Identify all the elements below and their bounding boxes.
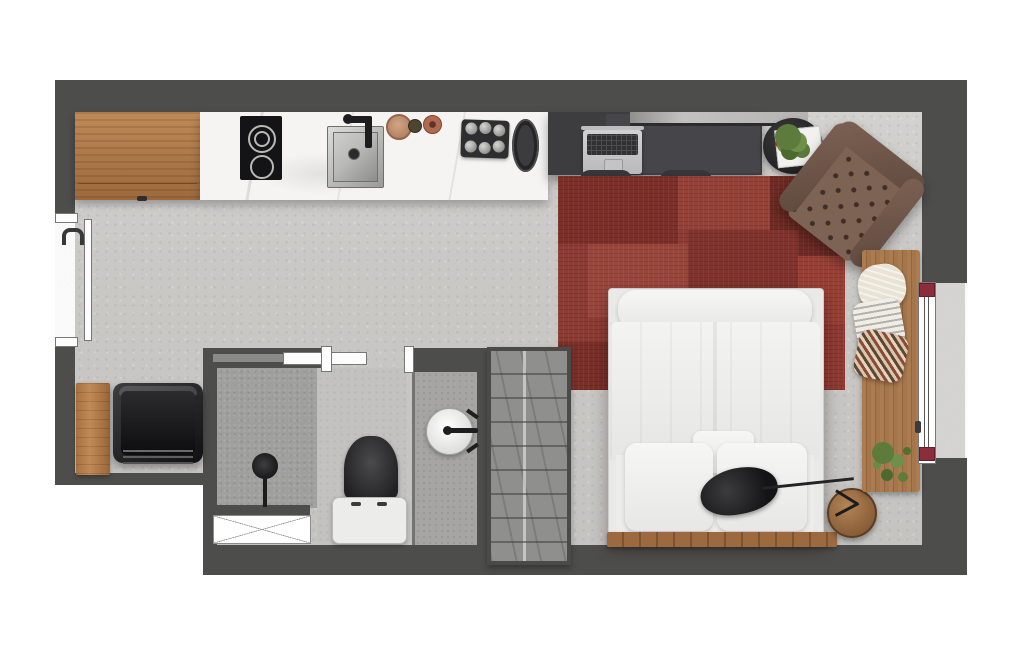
kitchen-faucet-stem xyxy=(365,116,372,148)
laptop-keyboard xyxy=(587,134,638,155)
shower-mixer-stem xyxy=(263,477,267,507)
cabinet-divider xyxy=(78,183,197,184)
entry-door-leaf xyxy=(84,219,92,341)
rug-patch xyxy=(678,176,770,230)
basin-faucet-bar xyxy=(449,428,478,433)
shower-tray-marker xyxy=(213,515,311,544)
glass xyxy=(465,122,477,134)
bed-slat-strip xyxy=(607,532,837,547)
toilet-hinge xyxy=(351,502,361,506)
glass-tray xyxy=(460,119,509,159)
plant-icon xyxy=(775,124,801,150)
entry-door-frame-top xyxy=(55,213,78,223)
shower-curb xyxy=(211,505,310,515)
sink-drain xyxy=(348,148,360,160)
toilet-hinge xyxy=(377,502,387,506)
lounge-footrest-line xyxy=(123,456,193,458)
vanity-counter xyxy=(412,372,480,545)
cooktop xyxy=(240,116,282,180)
door-handle-icon xyxy=(62,228,84,245)
lounge-seat xyxy=(121,391,195,455)
toilet-seat xyxy=(344,436,398,500)
oval-platter xyxy=(512,119,539,172)
glass xyxy=(478,142,490,154)
kitchen-faucet-end xyxy=(343,114,353,124)
top-wall xyxy=(55,80,967,112)
glass xyxy=(465,140,477,152)
bench-plant-icon xyxy=(872,442,894,464)
lounge-footrest-line xyxy=(123,450,193,452)
glass xyxy=(493,124,505,136)
floor-plan xyxy=(0,0,1024,645)
rug-patch xyxy=(558,244,588,342)
kitchen-sink xyxy=(327,126,384,188)
bottom-wall xyxy=(200,545,967,575)
sliding-door-track xyxy=(213,354,283,362)
window-cap-bottom xyxy=(919,447,935,461)
side-board xyxy=(76,383,110,475)
shower-mixer-icon xyxy=(252,453,278,479)
serving-board-small xyxy=(408,119,422,133)
burner-ring-inner xyxy=(254,131,270,147)
bathroom-door-jamb xyxy=(404,346,414,373)
cabinet-handle xyxy=(137,196,147,201)
burner-ring xyxy=(250,155,274,179)
kitchen-cabinet xyxy=(75,112,200,200)
shower-floor xyxy=(217,368,317,508)
pillow-left xyxy=(625,443,713,531)
bench-pillow-chevron xyxy=(852,327,911,384)
window-glass-line xyxy=(924,296,925,448)
glass xyxy=(479,122,491,134)
platter-inner xyxy=(517,125,534,166)
serving-board-medium xyxy=(423,115,442,134)
rug-patch xyxy=(558,176,678,244)
outside-cutout xyxy=(0,485,203,645)
wardrobe xyxy=(487,347,571,565)
left-wall-lower xyxy=(55,345,75,485)
lounge-footrest-line xyxy=(123,462,193,464)
balcony-slab xyxy=(935,283,965,463)
window-frame xyxy=(918,282,936,464)
window-cap-top xyxy=(919,283,935,297)
window-handle xyxy=(915,421,921,433)
entry-door-frame-bottom xyxy=(55,337,78,347)
glass xyxy=(493,140,505,152)
sliding-door-endcap xyxy=(321,346,332,372)
laptop-hinge xyxy=(581,126,644,130)
left-wall-upper xyxy=(55,80,75,215)
window-glass-line xyxy=(928,296,929,448)
toilet-tank xyxy=(332,497,407,544)
